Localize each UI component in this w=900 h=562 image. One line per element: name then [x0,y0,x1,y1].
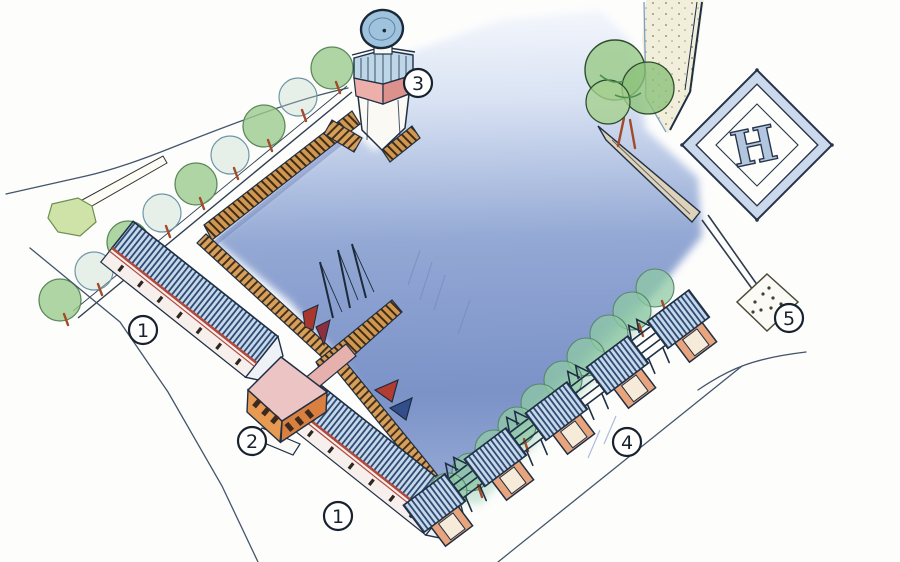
marker-number: 1 [332,506,344,528]
marina-site-plan-drawing: H [0,0,900,562]
marker-pavilion-row: 4 [613,428,641,456]
tree-icon [143,194,181,237]
radar-dish-icon [358,7,406,52]
helipad: H [680,68,834,222]
tree-icon [175,163,217,209]
marker-clubhouse: 2 [238,427,266,455]
marker-south-shed: 1 [324,502,352,530]
marker-plaza: 5 [775,304,803,332]
shrub-patch [48,198,96,236]
marker-north-shed: 1 [129,316,157,344]
marker-number: 2 [246,431,258,453]
tree-icon [243,105,285,151]
tree-icon [211,136,249,179]
marker-number: 4 [621,432,633,454]
marker-number: 1 [137,320,149,342]
site-plan-sketch-page: H [0,0,900,562]
tree-icon [279,78,317,121]
tree-icon [39,279,81,325]
marker-signal-tower: 3 [404,69,432,97]
marker-number: 5 [783,308,795,330]
plaza-path [702,215,758,290]
contour-line [698,352,806,390]
marker-number: 3 [412,73,424,95]
